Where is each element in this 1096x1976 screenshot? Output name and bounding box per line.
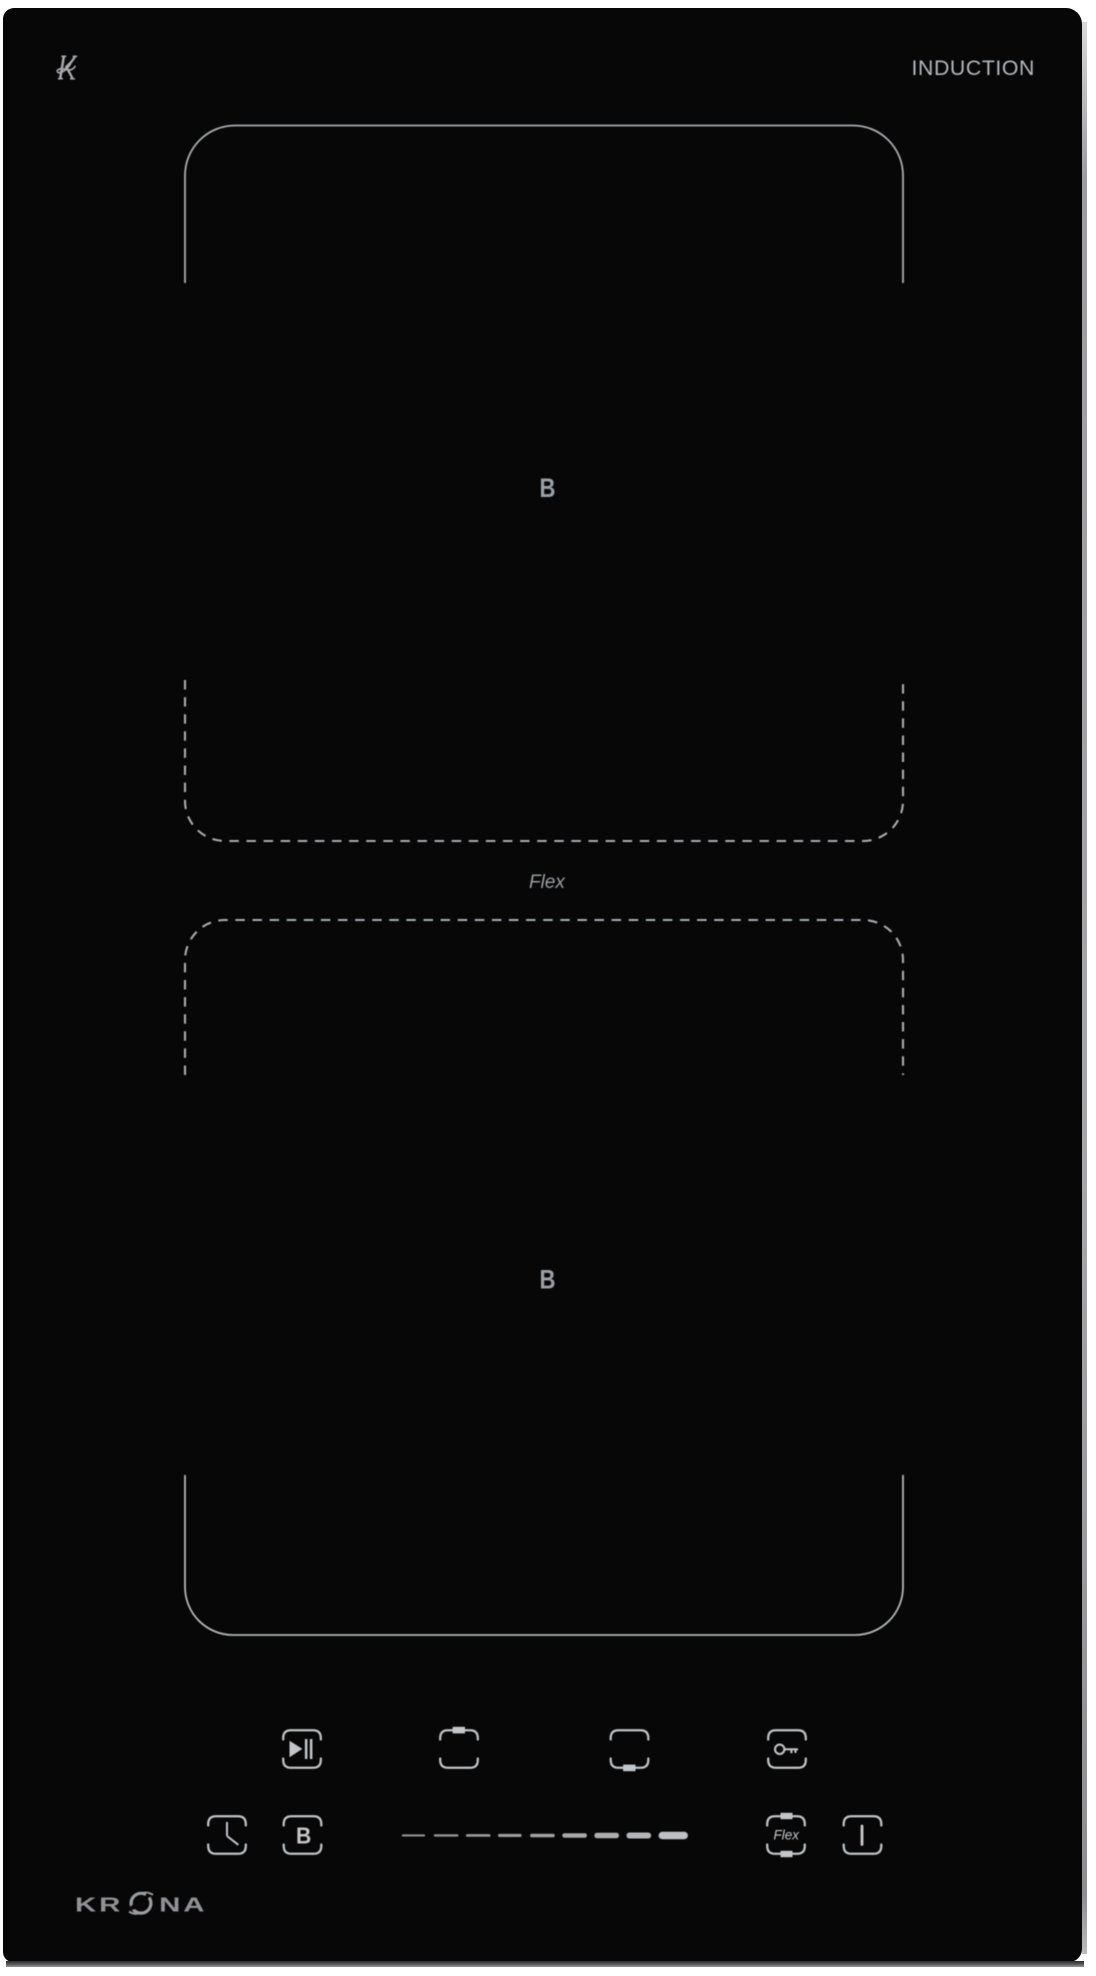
svg-text:KR: KR xyxy=(75,1894,123,1916)
svg-text:B: B xyxy=(540,472,556,503)
svg-text:B: B xyxy=(540,1264,556,1295)
svg-text:Flex: Flex xyxy=(774,1828,801,1843)
svg-text:B: B xyxy=(296,1823,311,1849)
svg-text:NA: NA xyxy=(159,1894,207,1916)
svg-text:INDUCTION: INDUCTION xyxy=(912,56,1036,80)
svg-text:Flex: Flex xyxy=(529,872,566,893)
